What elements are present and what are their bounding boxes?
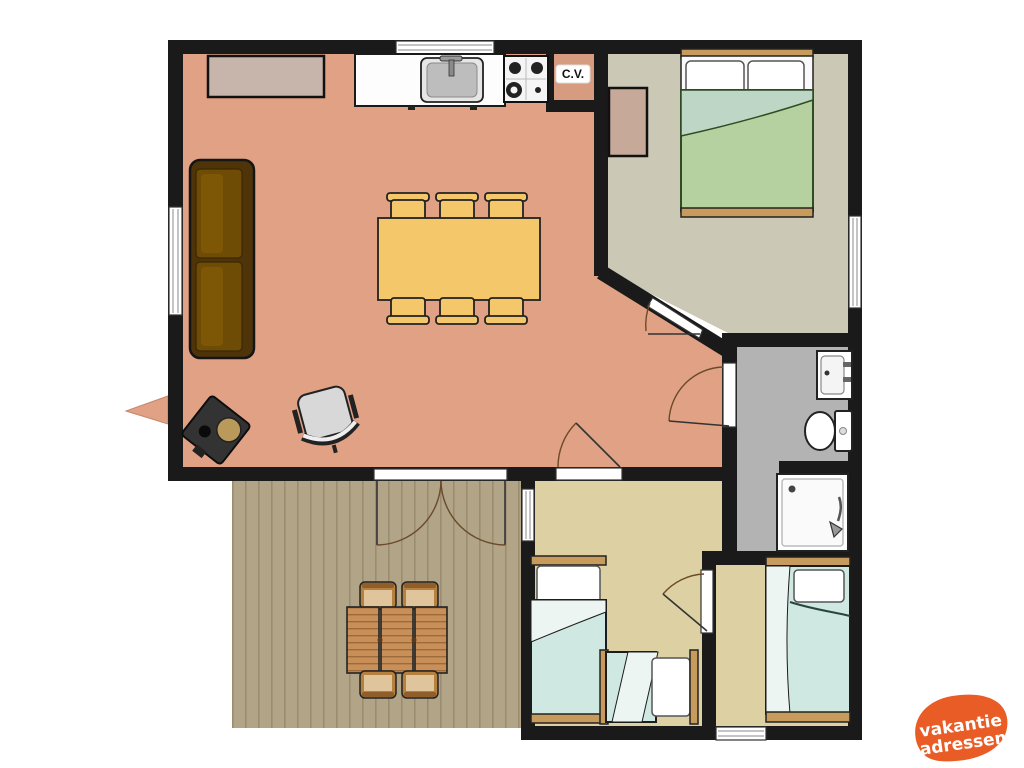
dining-chair bbox=[387, 193, 429, 220]
dining-chair bbox=[436, 193, 478, 220]
sofa bbox=[190, 160, 254, 358]
double-bed bbox=[681, 49, 813, 217]
vakantieadressen-logo: vakantie adressen bbox=[911, 689, 1013, 766]
bedroom2-window-west bbox=[522, 489, 534, 541]
dining-chair bbox=[387, 298, 429, 324]
bedroom3-furniture bbox=[766, 557, 850, 722]
single-bed-c bbox=[766, 557, 850, 722]
front-door-open-leaf bbox=[126, 396, 168, 424]
cv-closet-label: C.V. bbox=[556, 65, 590, 83]
outdoor-table bbox=[347, 607, 447, 673]
wardrobe bbox=[609, 88, 647, 156]
dining-chair bbox=[485, 193, 527, 220]
kitchen-window bbox=[396, 41, 494, 54]
wall-bottom bbox=[521, 726, 862, 740]
wall-master-west bbox=[594, 40, 608, 276]
toilet bbox=[805, 411, 852, 451]
single-bed-a bbox=[531, 556, 606, 723]
master-window-east bbox=[849, 216, 861, 308]
stove bbox=[504, 56, 548, 102]
outdoor-chair bbox=[402, 671, 438, 698]
dining-chair bbox=[436, 298, 478, 324]
wall-shower-stub bbox=[779, 461, 848, 474]
single-bed-b bbox=[600, 650, 698, 724]
outdoor-chair bbox=[360, 582, 396, 609]
floorplan-page: C.V. bbox=[0, 0, 1024, 768]
living-window-west bbox=[169, 207, 182, 315]
wall-bathroom-north bbox=[722, 333, 848, 347]
dining-set bbox=[378, 193, 540, 324]
wall-cv-south bbox=[546, 100, 608, 112]
dining-chair bbox=[485, 298, 527, 324]
cv-label: C.V. bbox=[562, 67, 584, 81]
outdoor-chair bbox=[402, 582, 438, 609]
shower bbox=[777, 474, 848, 551]
wash-basin bbox=[817, 351, 852, 399]
dining-table bbox=[378, 218, 540, 300]
sideboard bbox=[208, 56, 324, 97]
outdoor-chair bbox=[360, 671, 396, 698]
floorplan-drawing: C.V. bbox=[0, 0, 1024, 768]
bedroom3-window-south bbox=[716, 727, 766, 740]
kitchen-sink bbox=[421, 56, 483, 102]
